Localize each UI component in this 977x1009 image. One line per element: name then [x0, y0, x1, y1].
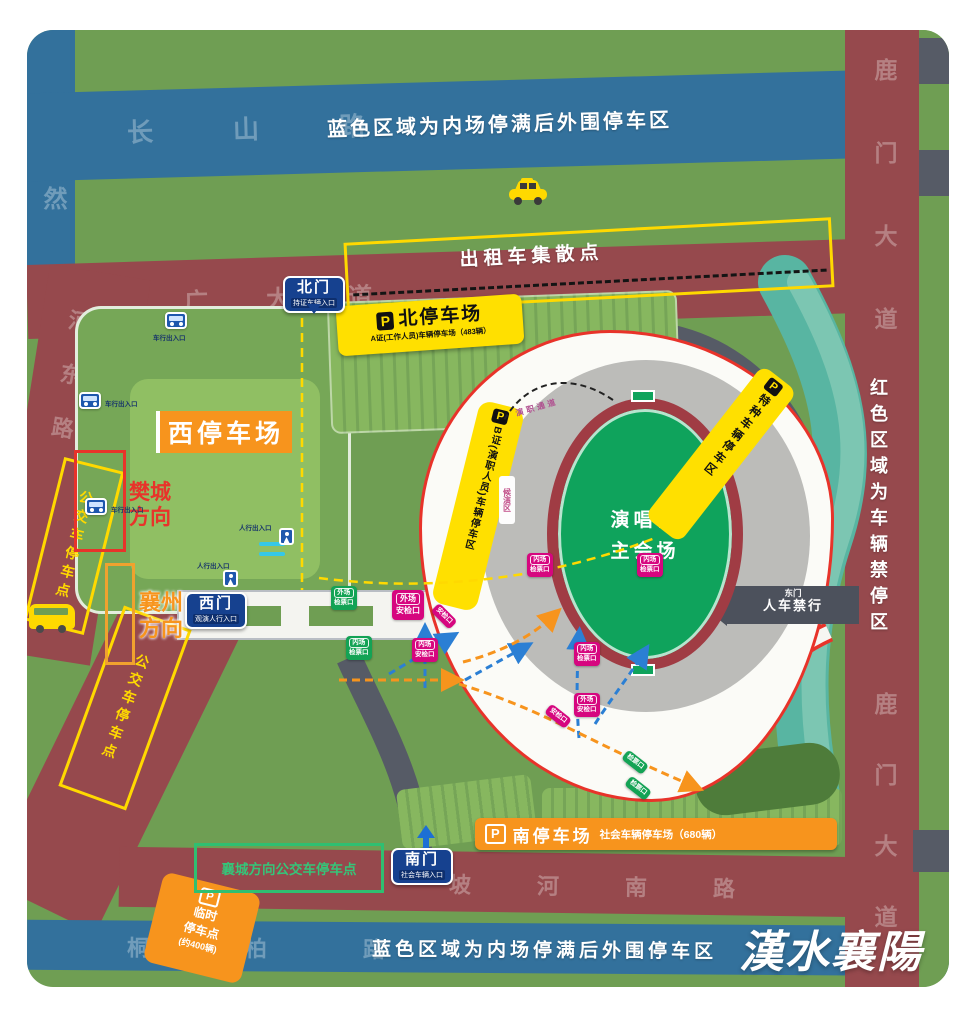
west-gate-badge: 西门 观演人行入口 [185, 592, 247, 629]
yellow-dash-parking-road [319, 538, 655, 584]
checkpoint-zone: 内场 [577, 644, 597, 654]
checkpoint-zone: 内场 [349, 638, 369, 648]
checkpoint-type: 安检口 [396, 606, 420, 615]
checkpoint-type: 检票口 [640, 566, 660, 573]
pedestrian-entrance-label: 人行出入口 [197, 560, 230, 570]
vehicle-entrance-label: 车行出入口 [111, 504, 144, 514]
checkpoint-zone: 外场 [396, 593, 420, 605]
checkpoint: 内场安检口 [412, 638, 438, 662]
checkpoint-type: 安检口 [415, 651, 435, 658]
bus-entrance-icon [165, 312, 187, 329]
west-gate-name: 西门 [193, 596, 239, 613]
south-gate-badge: 南门 社会车辆入口 [391, 848, 453, 885]
checkpoint-type: 检票口 [577, 655, 597, 662]
vehicle-entrance-label: 车行出入口 [105, 398, 138, 408]
xiangzhou-line1: 襄州 [139, 590, 183, 616]
pedestrian-entrance-label: 人行出入口 [239, 522, 272, 532]
checkpoint-type: 检票口 [334, 599, 354, 606]
checkpoint-type: 检票口 [349, 649, 369, 656]
checkpoint: 内场检票口 [346, 636, 372, 660]
checkpoint: 外场安检口 [392, 590, 424, 620]
checkpoint: 内场检票口 [574, 642, 600, 666]
xiangzhou-line2: 方向 [139, 616, 183, 642]
bus-entrance-icon [79, 392, 101, 409]
checkpoint: 外场安检口 [574, 693, 600, 717]
checkpoint-zone: 内场 [415, 640, 435, 650]
checkpoint-zone: 外场 [334, 588, 354, 598]
shuttle-bus-icon [29, 604, 75, 629]
watermark: 漢水襄陽 [739, 916, 923, 980]
checkpoint-type: 检票口 [530, 566, 550, 573]
pedestrian-entrance-icon [279, 528, 294, 545]
venue-traffic-map: 浩然 长山路 蓝色区域为内场停满后外围停车区 汉广大道 河东路 坡河南路 桐柏路… [27, 30, 949, 987]
pedestrian-entrance-icon [223, 570, 238, 587]
blue-arrow [595, 654, 643, 724]
checkpoint-zone: 内场 [640, 555, 660, 565]
checkpoint: 内场检票口 [637, 553, 663, 577]
map-card: 浩然 长山路 蓝色区域为内场停满后外围停车区 汉广大道 河东路 坡河南路 桐柏路… [0, 0, 977, 1009]
xiangcheng-bus-box: 襄城方向公交车停车点 [194, 843, 384, 893]
xiangzhou-direction-label: 襄州 方向 [139, 590, 183, 643]
xiangcheng-bus-label: 襄城方向公交车停车点 [222, 858, 357, 878]
checkpoint-zone: 外场 [577, 695, 597, 705]
xiangzhou-highlight-box [105, 563, 135, 665]
checkpoint-type: 安检口 [577, 706, 597, 713]
vehicle-entrance-label: 车行出入口 [153, 332, 186, 342]
black-dash-performer-path [503, 383, 613, 422]
north-gate-name: 北门 [291, 280, 337, 297]
checkpoint: 内场检票口 [527, 553, 553, 577]
crosswalk-mark [259, 552, 285, 556]
bus-entrance-icon [85, 498, 107, 515]
south-gate-arrow [417, 816, 435, 838]
west-gate-sub: 观演人行入口 [193, 614, 239, 624]
checkpoint-zone: 内场 [530, 555, 550, 565]
south-gate-name: 南门 [399, 852, 445, 869]
north-gate-badge: 北门 持证车辆入口 [283, 276, 345, 313]
south-gate-sub: 社会车辆入口 [399, 870, 445, 880]
checkpoint: 外场检票口 [331, 586, 357, 610]
parking-p-icon: P [376, 312, 395, 331]
north-gate-sub: 持证车辆入口 [291, 298, 337, 308]
fancheng-line1: 樊城 [129, 480, 171, 505]
